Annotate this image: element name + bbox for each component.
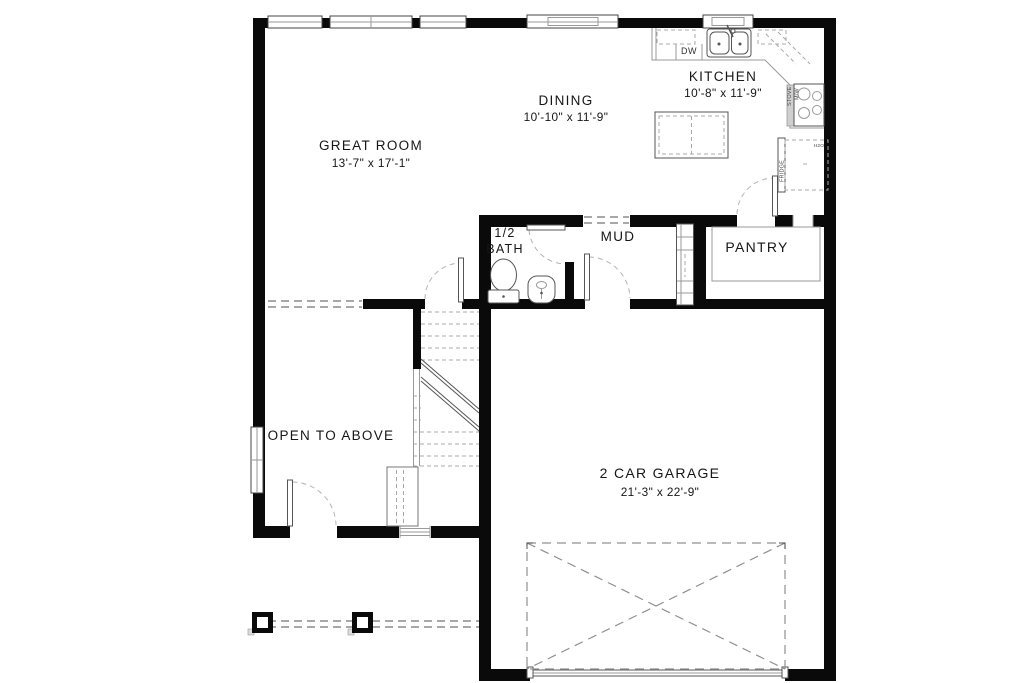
sink-drain bbox=[718, 43, 721, 46]
dining-label: DINING bbox=[538, 93, 593, 108]
wall-mid-lower-c bbox=[630, 299, 836, 309]
porch bbox=[248, 612, 479, 635]
wall-south-b bbox=[337, 526, 400, 538]
stove-label: STOVE bbox=[787, 86, 793, 106]
open-to-above-label: OPEN TO ABOVE bbox=[268, 428, 395, 443]
hall-door-swing bbox=[425, 263, 461, 299]
toilet-flush bbox=[502, 295, 505, 298]
wall-bath-right bbox=[565, 262, 574, 309]
kitchen-casework bbox=[652, 25, 828, 192]
front-door-leaf bbox=[288, 480, 293, 526]
dining-dims: 10'-10" x 11'-9" bbox=[524, 110, 609, 124]
garage-dims: 21'-3" x 22'-9" bbox=[621, 485, 700, 499]
wall-garage-bottom-a bbox=[479, 669, 530, 681]
half-bath-label-2: BATH bbox=[486, 242, 524, 256]
great-room-dims: 13'-7" x 17'-1" bbox=[332, 156, 411, 170]
upper-cabinet bbox=[758, 30, 786, 44]
bath-door-leaf bbox=[527, 225, 565, 230]
fridge-label: FRIDGE bbox=[780, 160, 786, 182]
mud-label: MUD bbox=[601, 229, 636, 244]
dishwasher-label: DW bbox=[681, 46, 697, 56]
half-bath-label-1: 1/2 bbox=[494, 226, 515, 240]
bath-door-swing bbox=[529, 230, 565, 264]
toilet-bowl bbox=[491, 259, 517, 291]
wall-mid-upper-d bbox=[813, 215, 836, 227]
mud-door-leaf bbox=[585, 254, 590, 300]
porch-post-center bbox=[357, 617, 368, 628]
pantry-door-leaf bbox=[773, 176, 778, 216]
corner-cabinet-line bbox=[766, 34, 796, 64]
half-bath-fixtures bbox=[488, 259, 555, 303]
pantry-label: PANTRY bbox=[725, 239, 788, 255]
kitchen-island bbox=[655, 112, 728, 158]
mud-door-swing bbox=[589, 257, 630, 298]
upper-cabinet bbox=[657, 30, 695, 44]
cased-openings bbox=[268, 217, 629, 307]
hall-door-leaf bbox=[459, 258, 464, 302]
sink-faucet-base bbox=[731, 29, 735, 33]
wall-garage-left bbox=[479, 215, 491, 681]
wall-stair-left bbox=[413, 299, 421, 369]
great-room-label: GREAT ROOM bbox=[319, 138, 423, 153]
porch-post-center bbox=[257, 617, 268, 628]
staircase bbox=[387, 312, 479, 526]
mud-lockers bbox=[677, 224, 694, 305]
garage-label: 2 CAR GARAGE bbox=[600, 465, 721, 481]
wall-right bbox=[824, 18, 836, 681]
floor-plan-page: GREAT ROOM 13'-7" x 17'-1" DINING 10'-10… bbox=[0, 0, 1024, 683]
microwave-label: M/W bbox=[795, 87, 801, 100]
wall-garage-bottom-b bbox=[785, 669, 836, 681]
corner-cabinet-line bbox=[778, 32, 810, 64]
doors bbox=[288, 176, 789, 678]
wall-south-a bbox=[253, 526, 290, 538]
garage-ceiling-storage bbox=[527, 543, 785, 669]
kitchen-label: KITCHEN bbox=[689, 69, 757, 84]
pedestal-sink-drain bbox=[540, 292, 543, 295]
water-line-label: H2O bbox=[814, 143, 825, 149]
wall-mud-pantry-divider bbox=[694, 215, 706, 309]
kitchen-dims: 10'-8" x 11'-9" bbox=[684, 86, 762, 100]
pantry-door-swing bbox=[737, 178, 773, 214]
wall-mid-upper-c bbox=[775, 215, 793, 227]
kitchen-sink bbox=[707, 25, 751, 57]
front-door-swing bbox=[293, 482, 337, 525]
floor-plan-drawing: GREAT ROOM 13'-7" x 17'-1" DINING 10'-10… bbox=[0, 0, 1024, 683]
entry-closet bbox=[387, 467, 418, 526]
sink-drain bbox=[739, 43, 742, 46]
